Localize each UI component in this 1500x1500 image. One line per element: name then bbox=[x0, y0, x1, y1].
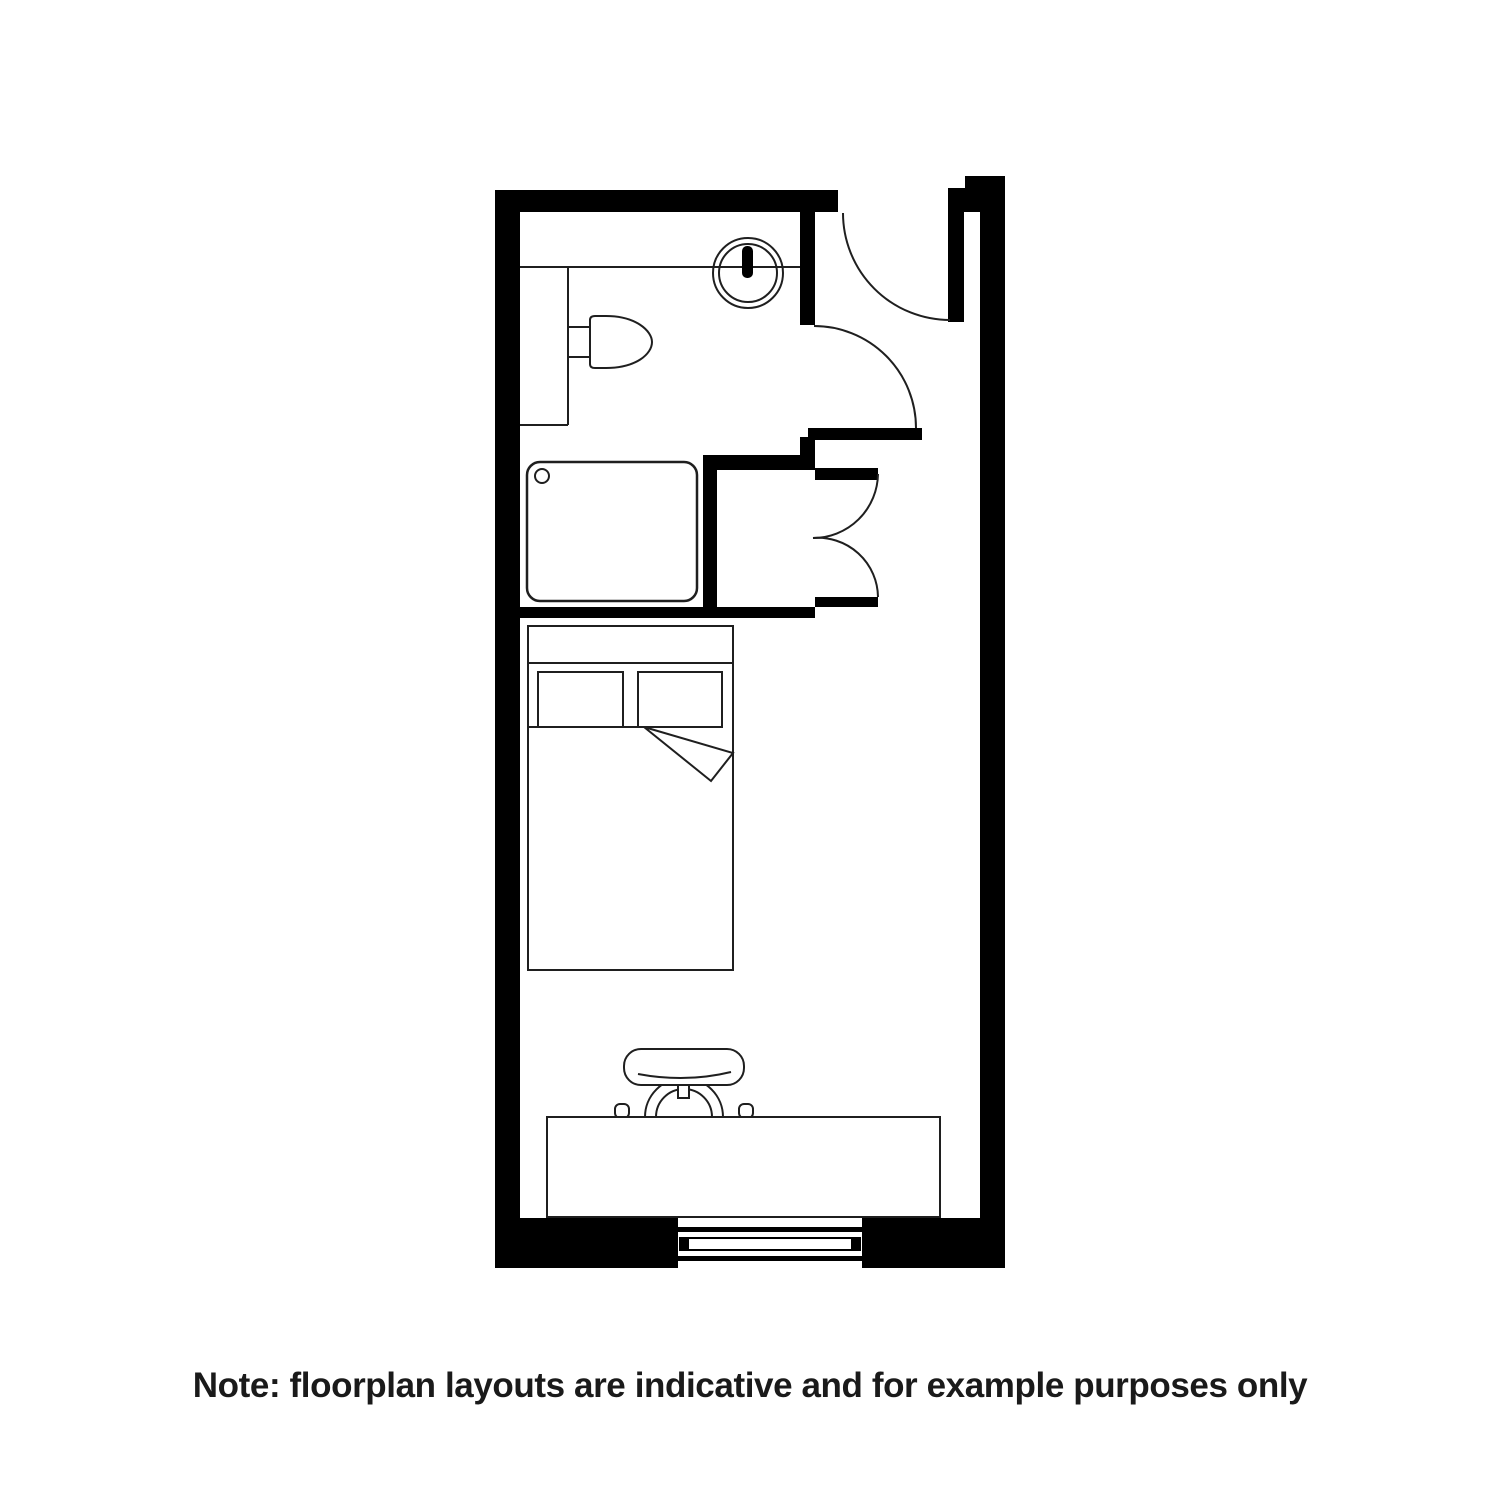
window-frame-cap-left bbox=[680, 1238, 689, 1250]
closet-wall-bottom-stub bbox=[815, 597, 878, 607]
chair-symbol bbox=[615, 1049, 753, 1118]
pillow-left bbox=[538, 672, 623, 727]
shower-tray bbox=[527, 462, 697, 601]
wall-right bbox=[980, 176, 1005, 1268]
closet-door-bottom-swing-icon bbox=[813, 538, 878, 597]
floorplan-drawing bbox=[0, 0, 1500, 1500]
window-frame bbox=[680, 1238, 860, 1250]
closet-wall-top bbox=[703, 455, 815, 470]
disclaimer-note: Note: floorplan layouts are indicative a… bbox=[0, 1366, 1500, 1406]
chair-stem bbox=[678, 1084, 689, 1098]
wall-bathroom-door-side bbox=[808, 428, 922, 440]
toilet-bowl bbox=[590, 316, 652, 368]
floorplan-page: Note: floorplan layouts are indicative a… bbox=[0, 0, 1500, 1500]
shower-symbol bbox=[527, 462, 697, 601]
wall-left bbox=[495, 190, 520, 1268]
wall-bottom-left bbox=[495, 1218, 678, 1268]
wall-top bbox=[495, 190, 838, 212]
bathroom-door-swing-icon bbox=[814, 326, 916, 428]
bathroom bbox=[520, 238, 800, 601]
wall-bathroom-east-stub bbox=[800, 212, 815, 325]
chair-backrest bbox=[624, 1049, 744, 1085]
bed-symbol bbox=[528, 626, 733, 970]
desk-symbol bbox=[547, 1117, 940, 1217]
sink-tap-icon bbox=[742, 246, 753, 278]
closet-wall-top-stub bbox=[815, 468, 878, 480]
closet-wall-left bbox=[703, 455, 717, 618]
wall-bottom-right bbox=[862, 1218, 1005, 1268]
toilet-tank bbox=[568, 327, 590, 357]
chair-armrest-right bbox=[739, 1104, 753, 1118]
entry-door-swing-icon bbox=[843, 213, 950, 320]
closet-door-top-swing-icon bbox=[813, 474, 878, 538]
window-inner-sill-line bbox=[677, 1256, 863, 1261]
window-outer-sill-line bbox=[677, 1227, 863, 1232]
window-frame-cap-right bbox=[851, 1238, 860, 1250]
chair-armrest-left bbox=[615, 1104, 629, 1118]
door-swings bbox=[813, 213, 950, 597]
toilet-symbol bbox=[568, 316, 652, 368]
entry-door-leaf bbox=[948, 212, 964, 322]
window-symbol bbox=[677, 1227, 863, 1261]
pillow-right bbox=[638, 672, 722, 727]
wall-bathroom-bottom bbox=[510, 607, 703, 618]
closet-wall-bottom bbox=[703, 607, 815, 618]
